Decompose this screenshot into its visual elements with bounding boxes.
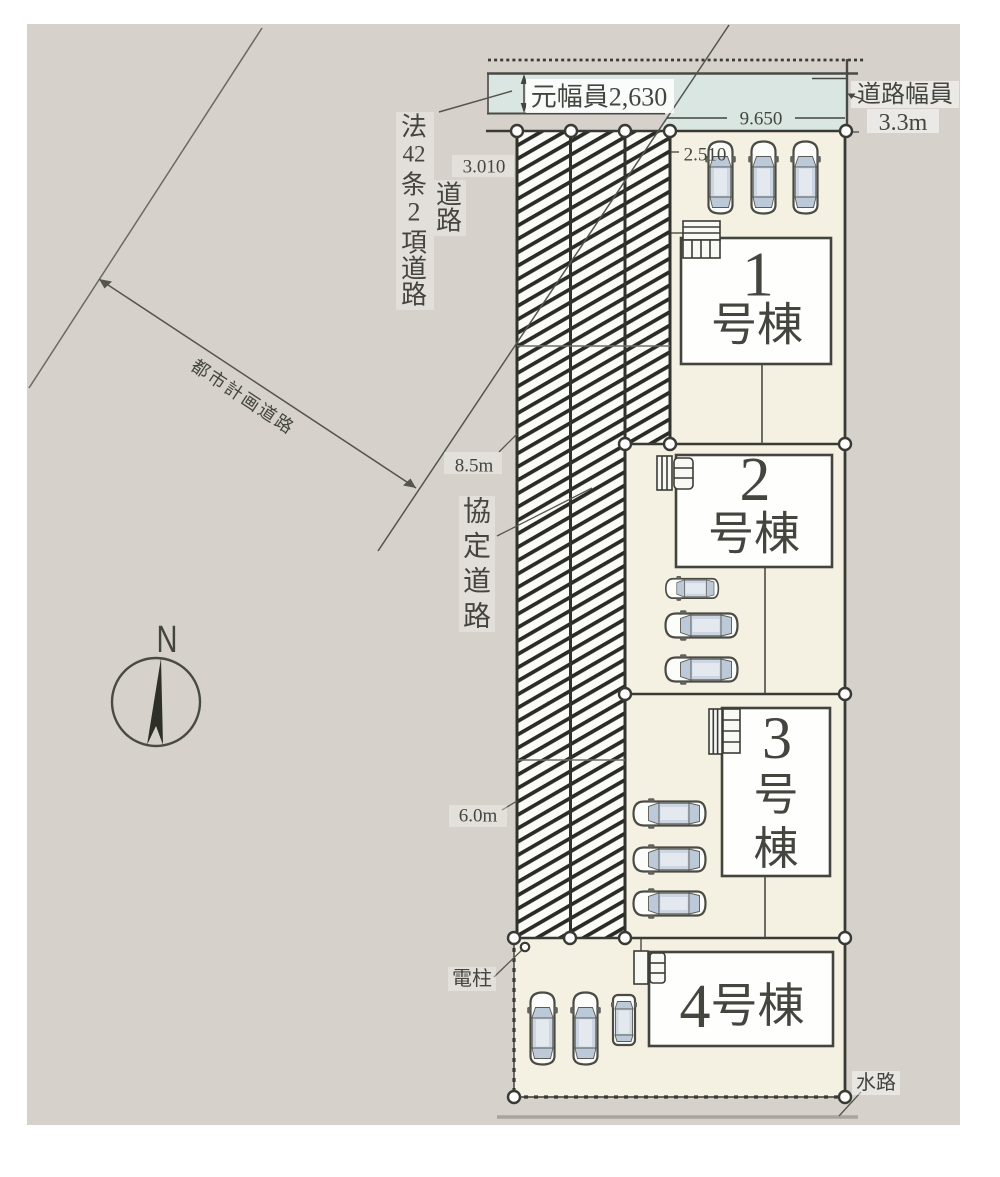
svg-text:号: 号 bbox=[753, 770, 798, 820]
svg-text:3: 3 bbox=[762, 705, 792, 771]
svg-text:道: 道 bbox=[401, 255, 427, 284]
svg-text:号棟: 号棟 bbox=[708, 509, 800, 560]
svg-text:3.3m: 3.3m bbox=[879, 110, 928, 136]
svg-text:水路: 水路 bbox=[856, 1071, 896, 1094]
svg-text:42: 42 bbox=[403, 142, 426, 167]
svg-text:2: 2 bbox=[408, 198, 421, 227]
svg-text:N: N bbox=[157, 619, 178, 661]
svg-text:協: 協 bbox=[463, 496, 491, 528]
svg-text:電柱: 電柱 bbox=[452, 967, 492, 990]
svg-text:定: 定 bbox=[463, 531, 491, 563]
svg-text:項: 項 bbox=[401, 229, 427, 258]
svg-text:号棟: 号棟 bbox=[711, 300, 803, 351]
svg-text:路: 路 bbox=[436, 207, 462, 236]
svg-text:道路幅員: 道路幅員 bbox=[857, 81, 953, 108]
svg-text:条: 条 bbox=[401, 171, 427, 200]
svg-text:路: 路 bbox=[401, 281, 427, 310]
svg-text:2.510: 2.510 bbox=[684, 145, 727, 166]
svg-text:路: 路 bbox=[463, 601, 491, 633]
svg-text:道: 道 bbox=[463, 566, 491, 598]
svg-text:元幅員2,630: 元幅員2,630 bbox=[531, 83, 668, 112]
svg-text:棟: 棟 bbox=[753, 824, 798, 874]
svg-text:2: 2 bbox=[740, 446, 771, 514]
svg-text:4号棟: 4号棟 bbox=[680, 973, 805, 1041]
svg-text:法: 法 bbox=[401, 113, 427, 142]
svg-text:8.5m: 8.5m bbox=[455, 456, 494, 477]
svg-text:道: 道 bbox=[436, 181, 462, 210]
svg-text:9.650: 9.650 bbox=[740, 109, 783, 130]
svg-text:6.0m: 6.0m bbox=[459, 806, 498, 827]
svg-text:3.010: 3.010 bbox=[463, 157, 506, 178]
